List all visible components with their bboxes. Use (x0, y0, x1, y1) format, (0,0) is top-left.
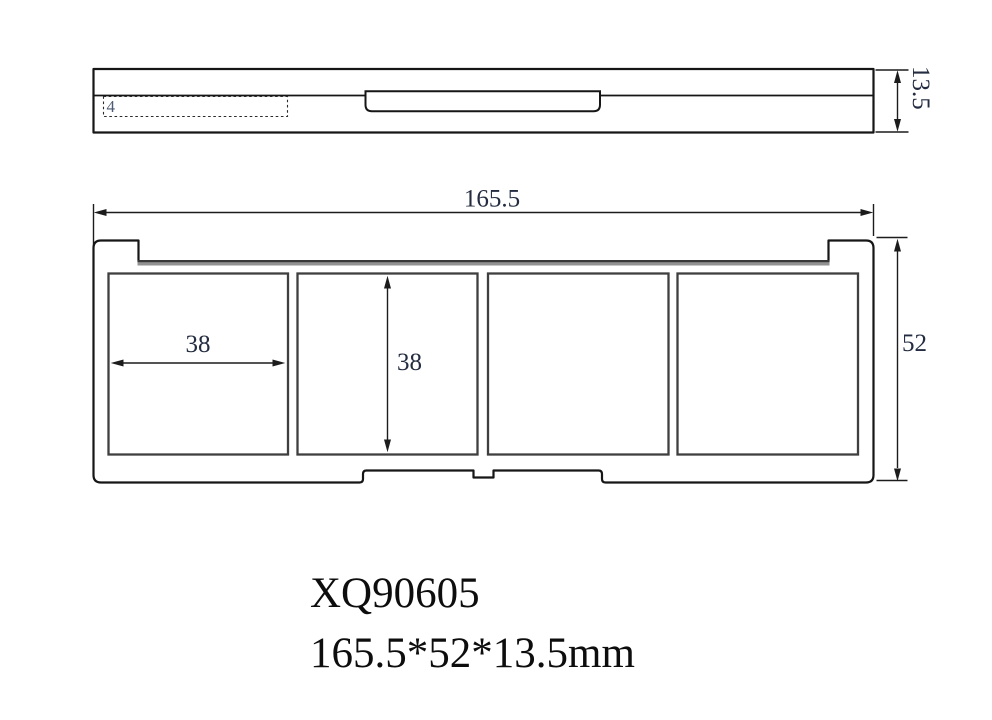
overall-depth-dim-label: 52 (902, 330, 927, 357)
overall-width-arrowhead-right (861, 209, 874, 216)
pan-1 (109, 274, 289, 455)
pan-4 (678, 274, 859, 455)
pan-3 (488, 274, 669, 455)
overall-depth-extension-lines (877, 238, 908, 481)
height-dim-label: 13.5 (907, 66, 934, 110)
pan-depth-dim-label: 38 (397, 349, 422, 376)
overall-width-arrowhead-left (94, 209, 107, 216)
film-callout-box (104, 97, 288, 117)
overall-depth-arrowhead-top (894, 239, 901, 252)
callout-4-label: 4 (107, 97, 116, 116)
drawing-sheet: 4 13.5 165.5 (0, 0, 992, 720)
hinge-band-edge (138, 260, 830, 262)
height-dim-arrowhead-bottom (894, 119, 901, 132)
technical-drawing: 4 13.5 165.5 (0, 0, 992, 720)
height-dim-arrowhead-top (894, 70, 901, 83)
title-block: XQ90605 165.5*52*13.5mm (310, 570, 635, 677)
side-view: 4 13.5 (94, 66, 935, 133)
model-number-label: XQ90605 (310, 570, 480, 617)
pan-width-dim-label: 38 (186, 331, 211, 358)
overall-depth-arrowhead-bottom (894, 469, 901, 482)
plan-view: 165.5 38 38 52 (94, 186, 928, 483)
overall-size-label: 165.5*52*13.5mm (310, 630, 635, 677)
overall-width-dim-label: 165.5 (464, 186, 520, 213)
height-dim-extension-lines (876, 70, 909, 132)
finger-recess (366, 91, 601, 111)
